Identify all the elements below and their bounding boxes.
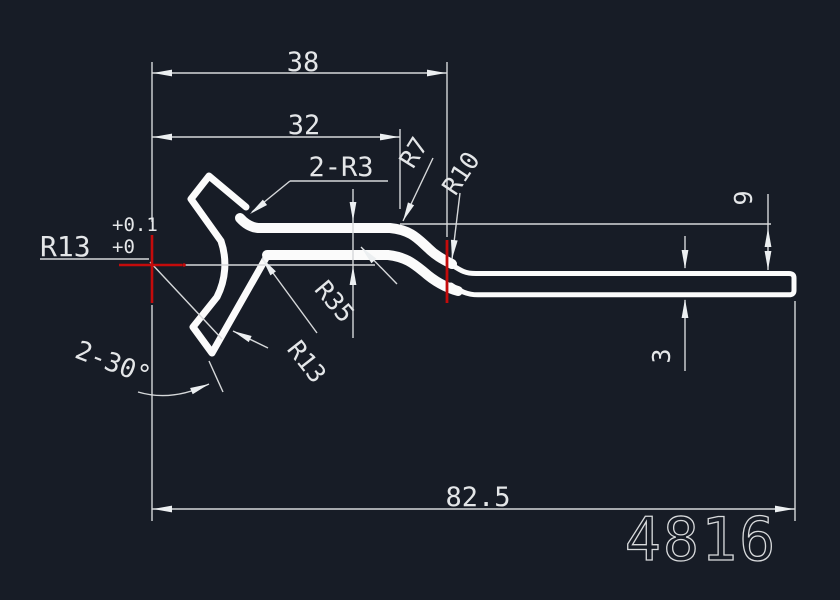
dim-text-angle: 2-30°: [71, 336, 155, 392]
arrow-angle: [190, 381, 210, 394]
arrow-9-bottom: [765, 251, 772, 270]
profile-flat-bar: [449, 263, 794, 295]
arrow-38-left: [153, 70, 172, 77]
center-marks: [119, 235, 447, 303]
part-number-label: 4816: [625, 505, 778, 575]
arrow-3-top: [682, 250, 689, 269]
arrow-2r3: [248, 200, 267, 217]
arrow-32-right: [380, 134, 399, 141]
dim-text-r13b: R13: [281, 335, 332, 388]
dim-text-32: 32: [288, 110, 321, 141]
dim-text-r10: R10: [436, 146, 485, 200]
dim-text-r13: R13: [40, 230, 91, 263]
arrow-wall-top: [350, 202, 357, 221]
profile-lower-wall: [267, 255, 458, 291]
dim-text-3: 3: [647, 348, 676, 363]
dim-text-r13-tol-lower: +0: [112, 236, 135, 258]
arrow-wall-bottom: [350, 266, 357, 285]
arrow-r13b: [232, 328, 252, 342]
arrow-9-top: [765, 228, 772, 247]
cad-canvas[interactable]: 38 32 82.5 9 3 R13 +0.1 +0 2-R3 R7 R10 R…: [0, 0, 840, 600]
arrow-r10: [449, 240, 458, 260]
dim-text-9: 9: [729, 190, 758, 205]
dimension-texts: 38 32 82.5 9 3 R13 +0.1 +0 2-R3 R7 R10 R…: [40, 47, 758, 513]
arrow-825-right: [775, 506, 794, 513]
dim-text-2r3: 2-R3: [308, 152, 373, 183]
dim-text-825: 82.5: [445, 482, 510, 513]
dim-text-38: 38: [287, 47, 320, 78]
drawing-viewport[interactable]: 38 32 82.5 9 3 R13 +0.1 +0 2-R3 R7 R10 R…: [0, 0, 840, 600]
center-mark-left-dot: [182, 263, 186, 267]
arrow-38-right: [427, 70, 446, 77]
arrow-r7: [400, 202, 414, 222]
dim-text-r13-tolerance: R13 +0.1 +0: [40, 214, 158, 263]
arrow-3-bottom: [682, 299, 689, 318]
arrow-32-left: [153, 134, 172, 141]
arrow-825-left: [153, 506, 172, 513]
dim-text-r13-tol-upper: +0.1: [112, 214, 158, 236]
angle-ref-line: [209, 361, 223, 392]
